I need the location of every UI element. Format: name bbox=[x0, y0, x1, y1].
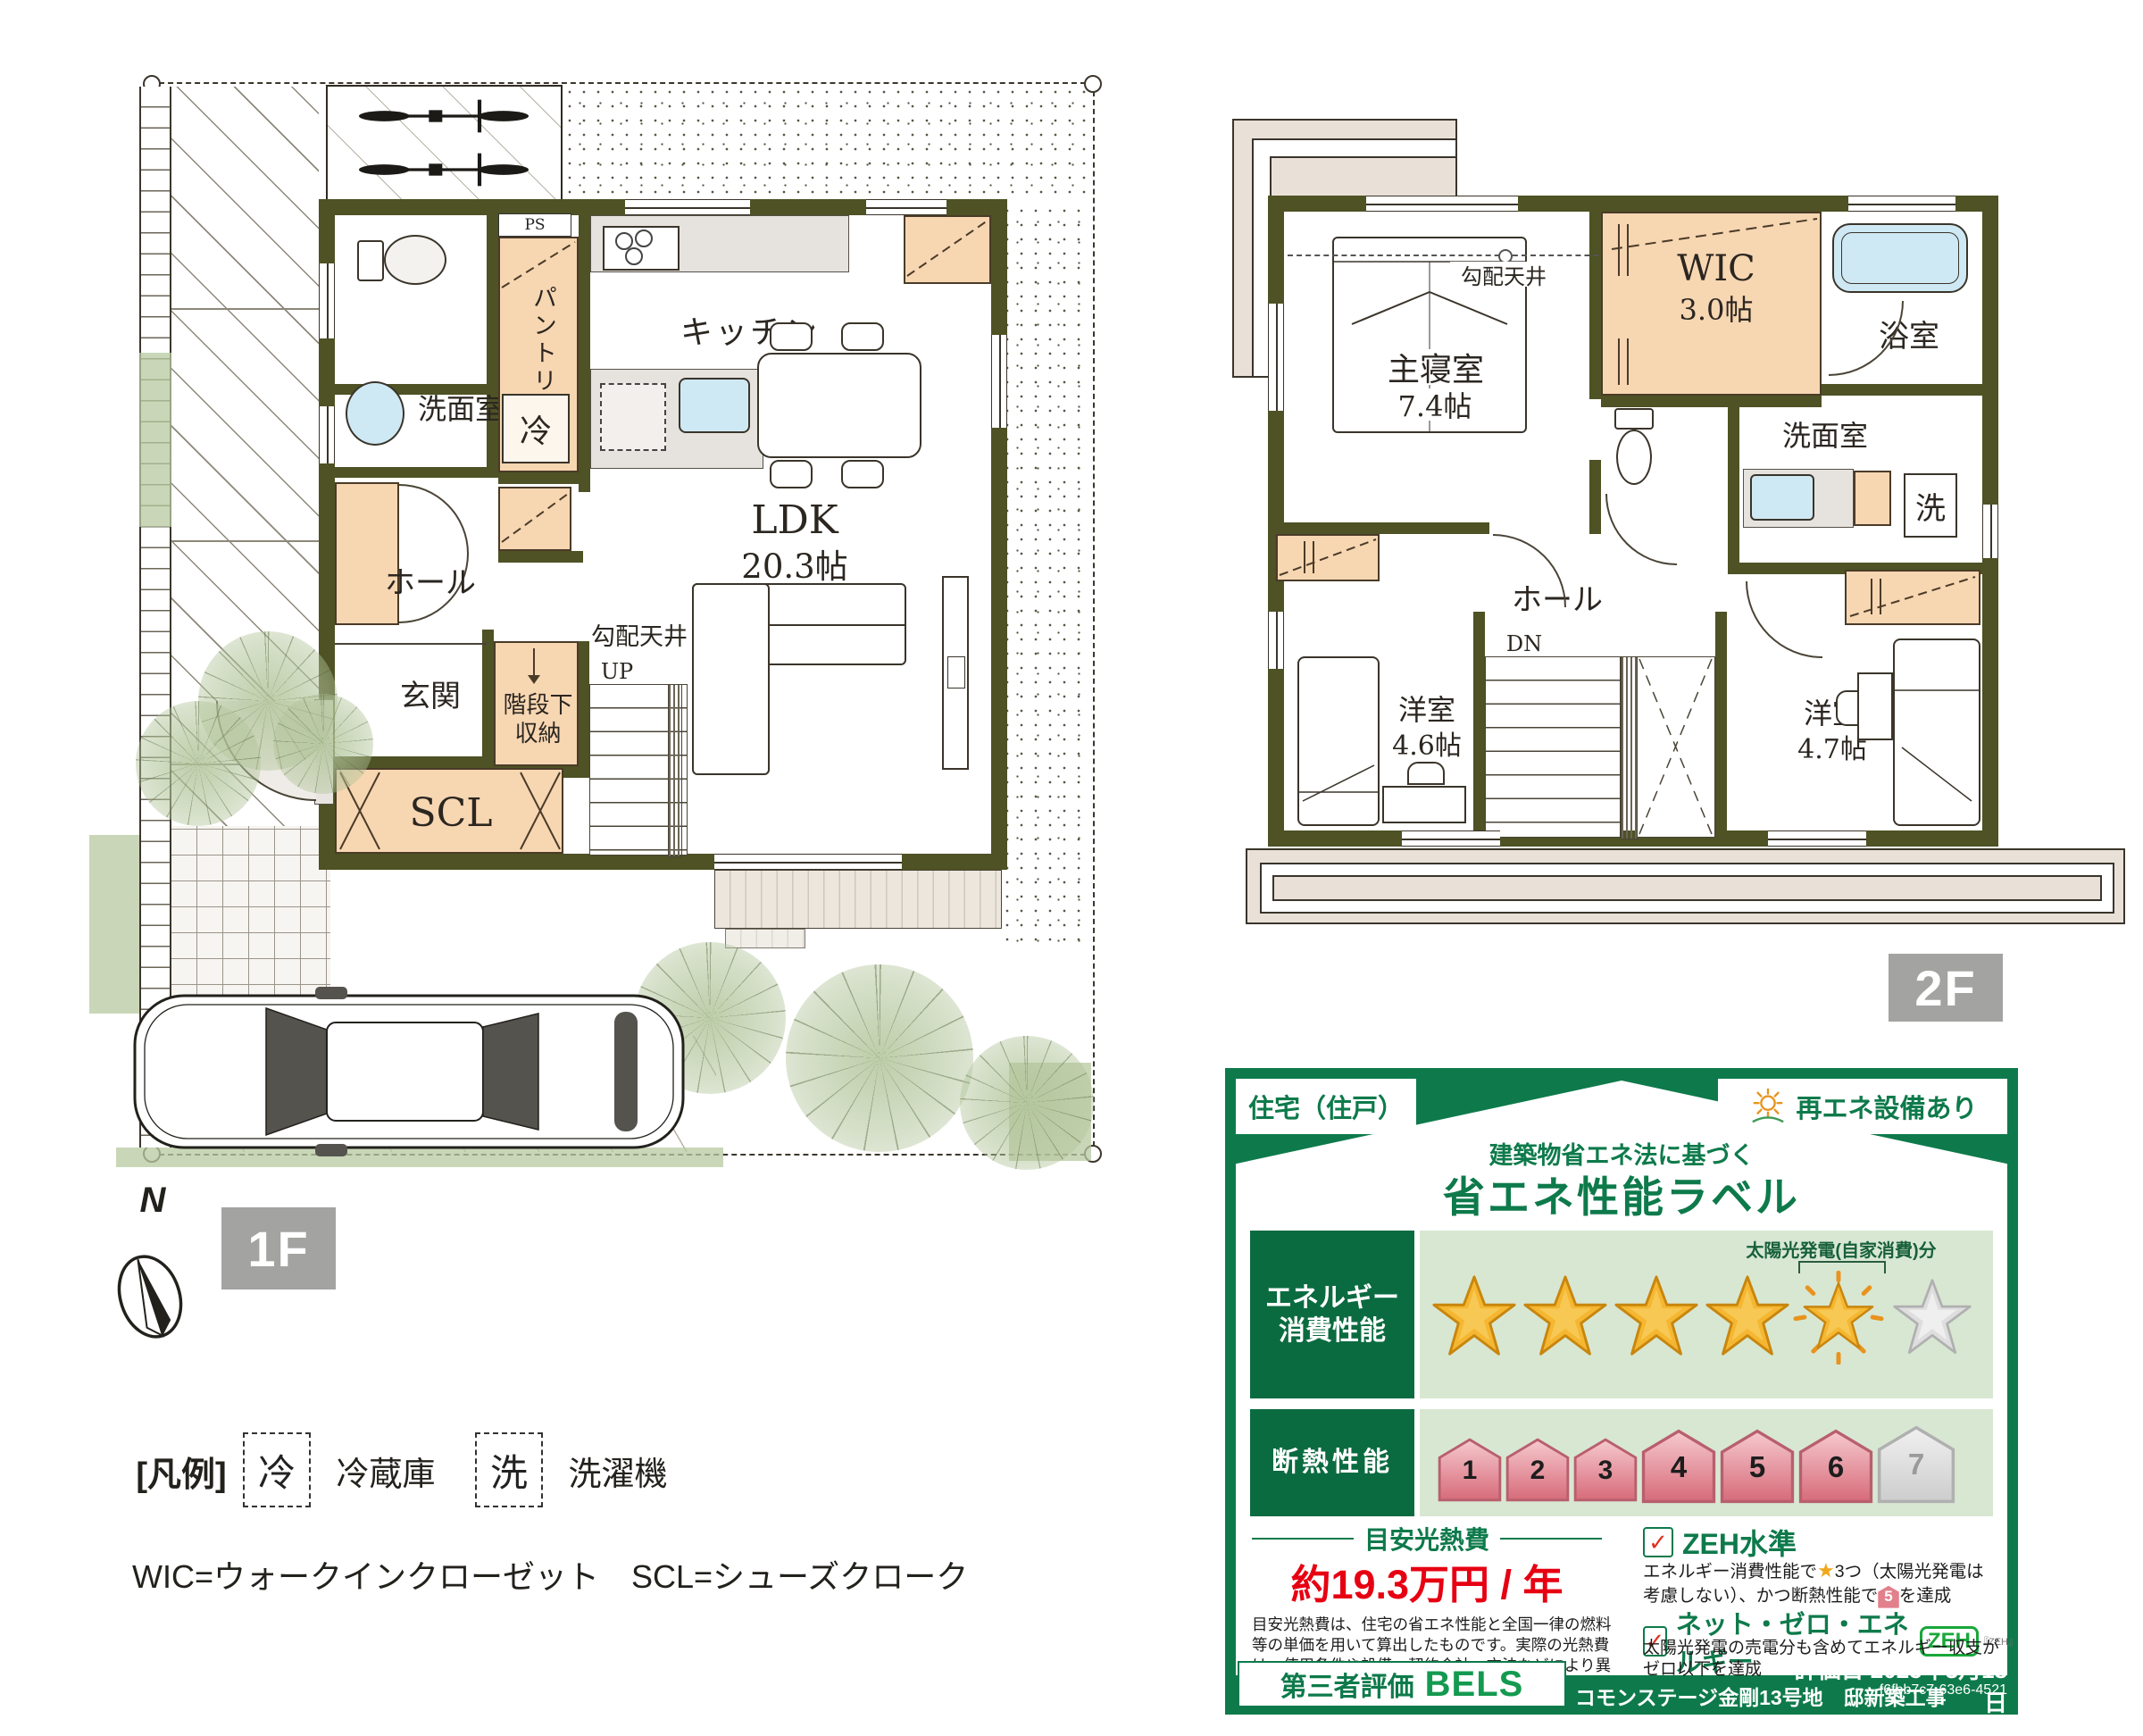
room-size-west1: 4.6帖 bbox=[1379, 728, 1475, 758]
evaluator-label: 第三者評価 bbox=[1280, 1665, 1414, 1704]
floor-plan-1f: 洗面室 PS パントリー 冷 bbox=[89, 40, 1098, 1174]
toilet-tank-2f bbox=[1614, 408, 1654, 430]
car-icon bbox=[132, 987, 686, 1156]
bicycle-parking bbox=[326, 85, 563, 204]
window bbox=[1268, 304, 1284, 411]
bels-wordmark: BELS bbox=[1425, 1665, 1524, 1705]
stairs-2f bbox=[1485, 656, 1621, 838]
window bbox=[1768, 830, 1866, 847]
fridge-label: 冷 bbox=[520, 405, 552, 452]
kitchen-corner-closet bbox=[904, 215, 991, 284]
legend-washer-label: 洗濯機 bbox=[555, 1448, 680, 1493]
paving-joint bbox=[171, 540, 319, 542]
deck-step bbox=[725, 929, 805, 948]
stair-railing-2f bbox=[1621, 656, 1639, 839]
sofa-chaise bbox=[692, 583, 770, 775]
legend-washer-mark: 洗 bbox=[490, 1443, 528, 1498]
energy-row-label-line2: 消費性能 bbox=[1279, 1315, 1386, 1348]
room-label-entrance: 玄関 bbox=[384, 676, 477, 710]
zeh-desc-1: エネルギー消費性能で bbox=[1643, 1562, 1817, 1582]
solar-note: 太陽光発電(自家消費)分 bbox=[1698, 1238, 1984, 1259]
wic: WIC 3.0帖 bbox=[1601, 212, 1822, 396]
insulation-row-label: 断熱性能 bbox=[1250, 1409, 1414, 1516]
washbasin bbox=[346, 381, 404, 446]
room-label-wic: WIC bbox=[1667, 249, 1765, 288]
floor-plan-2f: 主寝室 7.4帖 勾配天井 WIC 3.0帖 浴室 洗面室 bbox=[1232, 76, 2143, 1031]
kitchen-sink bbox=[679, 378, 750, 433]
renewable-box: 再エネ設備あり bbox=[1718, 1079, 2007, 1134]
star-icon bbox=[1704, 1273, 1791, 1361]
zeh-desc-2: 3つ（太陽光発電 bbox=[1835, 1562, 1966, 1582]
tree bbox=[960, 1036, 1094, 1170]
dining-chair bbox=[841, 322, 884, 351]
legend-washer-box: 洗 bbox=[475, 1432, 543, 1507]
toilet-tank bbox=[357, 240, 384, 281]
hedge bbox=[139, 353, 171, 527]
legend-fridge-box: 冷 bbox=[243, 1432, 311, 1507]
window bbox=[1366, 196, 1518, 212]
room-label-washroom-2f: 洗面室 bbox=[1764, 417, 1886, 451]
hall-closet bbox=[335, 482, 399, 625]
toilet-bowl bbox=[384, 235, 446, 285]
note-sloped-ceiling-1f: 勾配天井 bbox=[579, 621, 700, 647]
toilet-bowl-2f bbox=[1616, 430, 1652, 485]
room-label-scl: SCL bbox=[399, 789, 503, 836]
window bbox=[1268, 612, 1284, 669]
star-icon bbox=[1522, 1273, 1609, 1361]
under-stair-label2: 収納 bbox=[496, 718, 580, 745]
desk-west1 bbox=[1382, 786, 1466, 823]
window bbox=[1848, 196, 1955, 212]
dining-chair bbox=[770, 460, 813, 488]
insulation-house-3: 3 bbox=[1573, 1438, 1638, 1502]
tree bbox=[136, 701, 261, 826]
under-stair-storage: 階段下 収納 bbox=[494, 641, 579, 766]
insulation-house-7: 7 bbox=[1877, 1425, 1955, 1504]
cooktop bbox=[603, 226, 680, 271]
tv-board bbox=[942, 576, 969, 770]
insulation-house-5: 5 bbox=[1720, 1429, 1795, 1504]
bels-footer: 第三者評価 BELS コモンステージ金剛13号地 邸新築工事 評価日 2025年… bbox=[1225, 1675, 2018, 1715]
vanity-sink bbox=[1750, 474, 1814, 521]
room-label-ldk: LDK bbox=[723, 498, 866, 541]
compass-icon bbox=[105, 1216, 195, 1359]
insulation-house-6: 6 bbox=[1798, 1429, 1873, 1504]
legend-fridge-label: 冷蔵庫 bbox=[323, 1448, 448, 1493]
bels-box: 第三者評価 BELS bbox=[1238, 1661, 1566, 1707]
refrigerator: 冷 bbox=[502, 394, 570, 463]
sliding-door-deck bbox=[714, 854, 902, 870]
compass-north-label: N bbox=[130, 1181, 175, 1220]
tree bbox=[786, 964, 973, 1152]
chair-west2 bbox=[1836, 690, 1859, 726]
legend-title: [凡例] bbox=[132, 1448, 230, 1493]
floor-badge-1f: 1F bbox=[221, 1207, 336, 1289]
paving-joint bbox=[171, 308, 319, 310]
cost-value: 約19.3万円 / 年 bbox=[1252, 1557, 1602, 1604]
room-label-west1: 洋室 bbox=[1382, 692, 1472, 724]
star-solar-icon bbox=[1791, 1270, 1886, 1365]
dishwasher bbox=[600, 383, 666, 451]
renewable-label: 再エネ設備あり bbox=[1796, 1088, 1977, 1125]
energy-performance-label: 住宅（住戸） 再エネ設備あり 建築物省エネ法に基づく 省エネ性能ラベル エネルギ… bbox=[1225, 1068, 2018, 1715]
compass: N bbox=[105, 1181, 204, 1368]
star-empty-icon bbox=[1891, 1277, 1973, 1359]
stairw-void bbox=[1637, 656, 1715, 838]
single-bed-west1 bbox=[1297, 656, 1380, 826]
star-icon bbox=[1613, 1273, 1700, 1361]
wood-deck bbox=[714, 870, 1002, 929]
dining-table bbox=[757, 353, 921, 458]
stairs-up-label: UP bbox=[594, 660, 640, 683]
cost-title-row: 目安光熱費 bbox=[1252, 1525, 1602, 1552]
inline-star-icon: ★ bbox=[1817, 1559, 1835, 1582]
window bbox=[625, 199, 750, 215]
window bbox=[1402, 830, 1500, 847]
insulation-house-1: 1 bbox=[1438, 1438, 1502, 1502]
floor-plan-sheet: 洗面室 PS パントリー 冷 bbox=[0, 0, 2143, 1736]
energy-row-label-line1: エネルギー bbox=[1265, 1281, 1399, 1315]
sun-icon bbox=[1747, 1088, 1789, 1125]
insulation-house-2: 2 bbox=[1505, 1438, 1570, 1502]
window bbox=[991, 335, 1007, 428]
pipe-space: PS bbox=[498, 213, 571, 237]
energy-row-label: エネルギー 消費性能 bbox=[1250, 1231, 1414, 1398]
eval-id: f6fbb7c7-63e6-4521 bbox=[1779, 1682, 2007, 1698]
room-label-hall-1f: ホール bbox=[384, 563, 477, 597]
note-sloped-ceiling-2f: 勾配天井 bbox=[1450, 262, 1557, 287]
zeh-desc: エネルギー消費性能で★3つ（太陽光発電は考慮しない）、かつ断熱性能で5を達成 bbox=[1643, 1557, 2000, 1607]
gravel-area bbox=[1000, 204, 1091, 945]
legend-abbreviations: WIC=ウォークインクローゼット SCL=シューズクローク bbox=[132, 1552, 864, 1597]
single-bed-west2 bbox=[1893, 638, 1980, 826]
bicycle-icon bbox=[337, 147, 551, 192]
west1-closet bbox=[1276, 534, 1380, 581]
window bbox=[319, 406, 335, 463]
desk-west2 bbox=[1857, 672, 1893, 740]
insulation-house-4: 4 bbox=[1641, 1429, 1716, 1504]
room-size-wic: 3.0帖 bbox=[1667, 292, 1765, 324]
washer-mark-2f: 洗 bbox=[1915, 484, 1946, 528]
room-label-master: 主寝室 bbox=[1373, 349, 1498, 385]
dining-chair bbox=[770, 322, 813, 351]
tree bbox=[273, 694, 373, 794]
west2-closet bbox=[1845, 570, 1980, 625]
corridor-closet bbox=[498, 487, 571, 551]
room-size-ldk: 20.3帖 bbox=[714, 545, 875, 582]
vanity-side-cabinet bbox=[1854, 471, 1891, 526]
window bbox=[866, 199, 946, 215]
legend-fridge-mark: 冷 bbox=[258, 1443, 296, 1498]
scl-room: SCL bbox=[335, 768, 563, 854]
floor-badge-2f: 2F bbox=[1889, 954, 2003, 1022]
dining-chair bbox=[841, 460, 884, 488]
ps-label: PS bbox=[524, 216, 545, 234]
star-icon bbox=[1430, 1273, 1518, 1361]
label-title: 省エネ性能ラベル bbox=[1225, 1168, 2018, 1218]
window bbox=[1982, 505, 1998, 558]
room-size-master: 7.4帖 bbox=[1386, 388, 1484, 421]
chair-west1 bbox=[1407, 762, 1445, 785]
bathtub bbox=[1832, 223, 1968, 293]
stair-railing bbox=[668, 684, 682, 857]
insulation-label-text: 断熱性能 bbox=[1272, 1446, 1393, 1480]
bicycle-icon bbox=[337, 94, 551, 138]
stairs-dn-label: DN bbox=[1503, 631, 1546, 656]
usage-type: 住宅（住戸） bbox=[1248, 1088, 1404, 1125]
window bbox=[319, 263, 335, 338]
check-icon: ✓ bbox=[1643, 1527, 1673, 1557]
washer-box: 洗 bbox=[1904, 473, 1957, 538]
usage-type-box: 住宅（住戸） bbox=[1236, 1079, 1416, 1134]
roof-band-bottom bbox=[1246, 848, 2125, 924]
gravel-area bbox=[563, 85, 1091, 204]
zeh-desc-4: を達成 bbox=[1899, 1586, 1952, 1606]
under-stair-label1: 階段下 bbox=[496, 689, 580, 716]
